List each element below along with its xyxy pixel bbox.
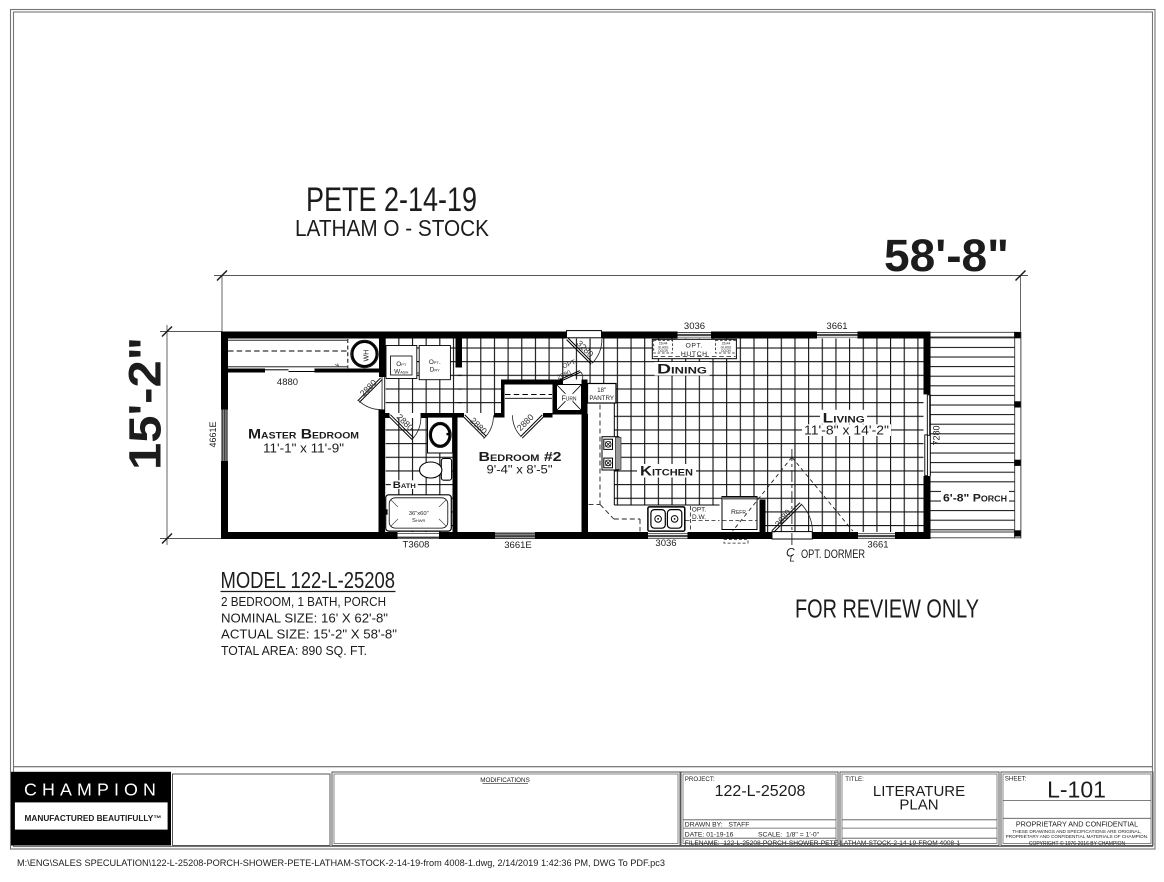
svg-text:DOOR: DOOR [721,349,731,353]
svg-text:THESE DRAWINGS AND SPECIFICATI: THESE DRAWINGS AND SPECIFICATIONS ARE OR… [1012,829,1141,834]
svg-text:Master Bedroom: Master Bedroom [248,427,359,442]
svg-text:LATHAM O - STOCK: LATHAM O - STOCK [295,215,490,241]
svg-text:OPT.: OPT. [692,507,707,514]
svg-text:OPT. DORMER: OPT. DORMER [801,549,865,561]
svg-text:T3608: T3608 [403,540,430,551]
svg-text:DATE: 01-19-16: DATE: 01-19-16 [685,831,734,838]
svg-text:3661: 3661 [867,540,888,551]
svg-text:Bedroom #2: Bedroom #2 [479,449,562,464]
svg-text:D.W.: D.W. [692,514,706,521]
svg-text:SCALE: 1/8" = 1'-0": SCALE: 1/8" = 1'-0" [758,831,820,838]
svg-text:Dining: Dining [657,362,707,377]
svg-text:FOR REVIEW ONLY: FOR REVIEW ONLY [795,594,979,624]
svg-text:PROPRIETARY AND CONFIDENTIAL M: PROPRIETARY AND CONFIDENTIAL MATERIALS O… [1006,834,1149,839]
svg-text:4880: 4880 [277,377,298,388]
svg-text:M:\ENG\SALES SPECULATION\122-L: M:\ENG\SALES SPECULATION\122-L-25208-POR… [17,858,665,868]
svg-text:PROPRIETARY AND CONFIDENTIAL: PROPRIETARY AND CONFIDENTIAL [1016,819,1138,828]
svg-text:TOTAL AREA: 890 SQ. FT.: TOTAL AREA: 890 SQ. FT. [221,643,367,658]
svg-text:Kitchen: Kitchen [640,464,693,479]
svg-text:SHEET:: SHEET: [1005,775,1027,782]
svg-text:COPYRIGHT © 1976-2016 BY CHAMP: COPYRIGHT © 1976-2016 BY CHAMPION [1029,840,1126,847]
svg-text:PETE 2-14-19: PETE 2-14-19 [306,181,477,219]
svg-text:MANUFACTURED BEAUTIFULLY™: MANUFACTURED BEAUTIFULLY™ [25,814,162,823]
svg-text:Wash: Wash [394,368,408,375]
svg-text:3661: 3661 [826,321,847,332]
svg-text:9'-4" x 8'-5": 9'-4" x 8'-5" [487,465,553,477]
svg-text:PANTRY: PANTRY [589,395,614,402]
svg-text:DOOR: DOOR [658,349,668,353]
svg-text:15'-2": 15'-2" [120,337,171,470]
svg-text:122-L-25208: 122-L-25208 [715,783,806,800]
svg-text:11'-8" x 14'-2": 11'-8" x 14'-2" [804,424,889,438]
svg-text:Opt.: Opt. [429,359,441,366]
svg-text:6'-8" Porch: 6'-8" Porch [943,493,1007,505]
svg-text:PROJECT:: PROJECT: [685,776,715,783]
svg-text:ACTUAL SIZE: 15'-2" X 58'-8": ACTUAL SIZE: 15'-2" X 58'-8" [221,627,397,642]
svg-text:3036: 3036 [655,538,676,549]
svg-text:11'-1" x 11'-9": 11'-1" x 11'-9" [263,442,344,456]
svg-text:18": 18" [597,388,606,394]
svg-text:MODEL 122-L-25208: MODEL 122-L-25208 [221,567,396,593]
svg-text:36"x60": 36"x60" [409,511,429,517]
svg-text:3036: 3036 [684,321,705,332]
svg-text:L-101: L-101 [1047,777,1106,803]
svg-text:58'-8": 58'-8" [884,230,1009,281]
svg-text:4661E: 4661E [208,421,218,447]
svg-text:Bath: Bath [393,480,416,490]
svg-text:TITLE:: TITLE: [845,776,864,783]
svg-text:Opt: Opt [396,361,407,368]
svg-text:2 BEDROOM, 1 BATH, PORCH: 2 BEDROOM, 1 BATH, PORCH [221,594,386,609]
svg-text:PLAN: PLAN [899,797,938,814]
svg-text:L: L [790,554,795,565]
svg-text:DRAWN BY: STAFF: DRAWN BY: STAFF [685,821,750,828]
svg-text:Shwr: Shwr [412,518,426,524]
svg-text:CHAMPION: CHAMPION [24,780,161,800]
svg-text:Refr: Refr [731,509,746,516]
svg-text:OPT.: OPT. [686,342,704,349]
svg-text:7280: 7280 [932,425,942,445]
svg-text:Dry: Dry [430,366,440,373]
svg-text:Furn: Furn [561,395,576,402]
svg-text:3661E: 3661E [504,540,531,551]
svg-text:MODIFICATIONS: MODIFICATIONS [480,777,530,784]
svg-text:WH: WH [363,350,370,362]
svg-text:NOMINAL SIZE: 16' X 62'-8": NOMINAL SIZE: 16' X 62'-8" [221,610,388,625]
